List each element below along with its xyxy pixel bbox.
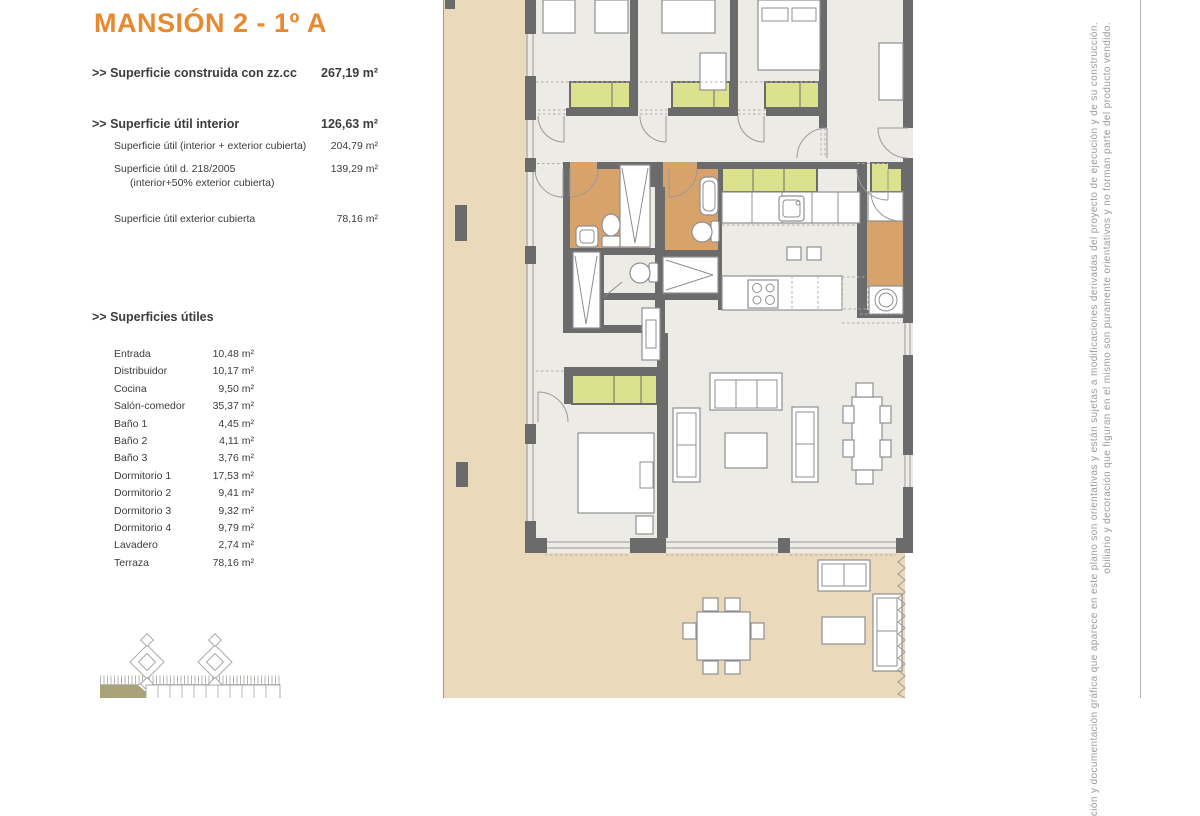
disclaimer-line-2: obiliario y decoración que figuran en el…	[1102, 22, 1113, 574]
stove	[748, 280, 778, 308]
room-area: 3,76 m²	[218, 452, 254, 469]
room-row: Dormitorio 39,32 m²	[114, 505, 254, 522]
room-row: Distribuidor10,17 m²	[114, 365, 254, 382]
sofa	[710, 373, 782, 410]
outdoor-table	[697, 612, 750, 660]
sideboard	[879, 43, 903, 100]
page-margin-line	[1140, 0, 1141, 698]
room-row: Entrada10,48 m²	[114, 348, 254, 365]
room-name: Terraza	[114, 557, 149, 574]
chair	[880, 440, 891, 457]
room-name: Baño 3	[114, 452, 147, 469]
summary-label: Superficie útil (interior + exterior cub…	[92, 140, 306, 152]
summary-value: 204,79 m²	[331, 140, 378, 152]
toilet	[602, 236, 620, 247]
room-area: 35,37 m²	[213, 400, 254, 417]
room-name: Dormitorio 1	[114, 470, 171, 487]
summary-value: 126,63 m²	[321, 117, 378, 131]
room-area: 78,16 m²	[213, 557, 254, 574]
key-plan	[100, 634, 280, 698]
room-row: Salón-comedor35,37 m²	[114, 400, 254, 417]
room-row: Dormitorio 117,53 m²	[114, 470, 254, 487]
rooms-list: Entrada10,48 m²Distribuidor10,17 m²Cocin…	[114, 348, 254, 574]
chair	[751, 623, 764, 639]
room-area: 2,74 m²	[218, 539, 254, 556]
shower	[620, 165, 650, 247]
chair	[856, 383, 873, 397]
room-name: Dormitorio 3	[114, 505, 171, 522]
room-row: Baño 33,76 m²	[114, 452, 254, 469]
room-name: Baño 1	[114, 418, 147, 435]
summary-label: >> Superficie útil interior	[92, 117, 239, 131]
highlighted-building	[100, 685, 146, 698]
chair	[703, 661, 718, 674]
room-area: 10,48 m²	[213, 348, 254, 365]
summary-value: 267,19 m²	[321, 66, 378, 80]
room-row: Cocina9,50 m²	[114, 383, 254, 400]
outdoor-coffee-table	[822, 617, 865, 644]
bed	[578, 433, 654, 513]
dining-table	[852, 397, 882, 470]
shower	[663, 257, 718, 293]
hall-console	[642, 308, 660, 360]
summary-row: >> Superficie construida con zz.cc267,19…	[92, 66, 378, 80]
surface-summary: >> Superficie construida con zz.cc267,19…	[0, 0, 400, 300]
washing-machine	[869, 286, 903, 314]
summary-row: >> Superficie útil interior126,63 m²	[92, 117, 378, 131]
summary-value: 78,16 m²	[337, 213, 378, 225]
room-name: Dormitorio 4	[114, 522, 171, 539]
room-name: Cocina	[114, 383, 147, 400]
room-area: 9,50 m²	[218, 383, 254, 400]
room-area: 9,79 m²	[218, 522, 254, 539]
kitchen-island	[722, 276, 842, 310]
chair	[856, 470, 873, 484]
floor-plan-page: { "header": { "title": "MANSIÓN 2 - 1º A…	[0, 0, 1200, 698]
room-name: Baño 2	[114, 435, 147, 452]
room-row: Terraza78,16 m²	[114, 557, 254, 574]
room-area: 17,53 m²	[213, 470, 254, 487]
room-row: Dormitorio 49,79 m²	[114, 522, 254, 539]
summary-label: Superficie útil exterior cubierta	[92, 213, 255, 225]
room-area: 4,45 m²	[218, 418, 254, 435]
room-area: 9,32 m²	[218, 505, 254, 522]
summary-sublabel: (interior+50% exterior cubierta)	[114, 177, 274, 189]
disclaimer-line-1: ción y documentación gráfica que aparece…	[1089, 22, 1100, 816]
nightstand	[636, 516, 653, 534]
chair	[703, 598, 718, 611]
room-name: Lavadero	[114, 539, 158, 556]
room-name: Dormitorio 2	[114, 487, 171, 504]
summary-label: Superficie útil d. 218/2005(interior+50%…	[92, 163, 274, 189]
room-row: Baño 24,11 m²	[114, 435, 254, 452]
chair	[843, 440, 854, 457]
rooms-heading: >> Superficies útiles	[92, 310, 214, 324]
room-row: Baño 14,45 m²	[114, 418, 254, 435]
chair	[843, 406, 854, 423]
room-area: 9,41 m²	[218, 487, 254, 504]
room-area: 4,11 m²	[219, 435, 254, 452]
summary-value: 139,29 m²	[331, 163, 378, 175]
summary-row: Superficie útil exterior cubierta78,16 m…	[92, 213, 378, 225]
stool	[787, 247, 801, 260]
room-name: Salón-comedor	[114, 400, 185, 417]
sink	[576, 226, 598, 247]
stool	[807, 247, 821, 260]
bed-double	[758, 0, 820, 70]
summary-row: Superficie útil d. 218/2005(interior+50%…	[92, 163, 378, 189]
chair	[725, 598, 740, 611]
room-row: Dormitorio 29,41 m²	[114, 487, 254, 504]
room-name: Distribuidor	[114, 365, 167, 382]
chair	[683, 623, 696, 639]
chair	[880, 406, 891, 423]
room-row: Lavadero2,74 m²	[114, 539, 254, 556]
coffee-table	[725, 433, 767, 468]
summary-label: >> Superficie construida con zz.cc	[92, 66, 297, 80]
room-area: 10,17 m²	[213, 365, 254, 382]
summary-row: Superficie útil (interior + exterior cub…	[92, 140, 378, 152]
chair	[725, 661, 740, 674]
room-name: Entrada	[114, 348, 151, 365]
